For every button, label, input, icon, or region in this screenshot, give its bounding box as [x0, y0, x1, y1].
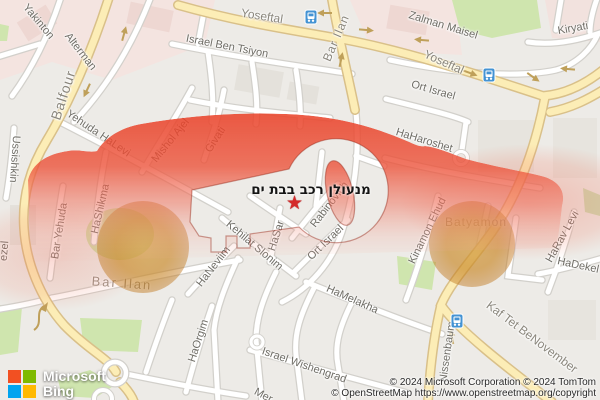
- street-label: Kiryati: [557, 21, 589, 37]
- map-canvas: [0, 0, 600, 400]
- street-label: Ussishkin: [7, 135, 21, 183]
- transit-station-icon[interactable]: [305, 10, 318, 25]
- microsoft-logo-icon: [8, 370, 36, 398]
- major-roads: [24, 0, 600, 400]
- locksmith-title: מנעולן רכב בבת ים: [250, 182, 372, 198]
- street-label: ezel: [0, 240, 11, 261]
- street-labels-layer: YakintonAltermanBalfourIsrael Ben Tsiyon…: [0, 0, 600, 400]
- street-label: HaNeviim: [195, 245, 233, 289]
- attribution-line1: © 2024 Microsoft Corporation © 2024 TomT…: [331, 377, 596, 388]
- street-label: Yakinton: [20, 2, 55, 41]
- street-label: Nissenbaum: [438, 321, 457, 383]
- buildings: [10, 2, 597, 340]
- street-label: Israel Wishengrad: [260, 346, 347, 385]
- location-star-icon: ★: [286, 194, 303, 213]
- car-wheel-right: [429, 201, 515, 287]
- logo-product: Bing: [43, 384, 106, 399]
- street-label: Bar Ilan: [321, 13, 351, 63]
- street-label: Ort Israel: [306, 223, 346, 262]
- map[interactable]: YakintonAltermanBalfourIsrael Ben Tsiyon…: [0, 0, 600, 400]
- attribution-line2[interactable]: © OpenStreetMap https://www.openstreetma…: [331, 388, 596, 399]
- transit-layer: [0, 0, 600, 400]
- street-label: Givati: [204, 125, 229, 155]
- major-roads-casing: [24, 0, 600, 400]
- street-label: Yoseftal: [240, 7, 284, 25]
- street-label: Batyamon: [445, 216, 507, 228]
- street-label: HaHaroshet: [394, 127, 453, 155]
- street-label: Israel Ben Tsiyon: [185, 34, 269, 61]
- street-label: Mishol Ajel: [150, 117, 192, 165]
- transit-station-icon[interactable]: [483, 68, 496, 83]
- street-label: Kinamon Ehud: [407, 196, 449, 266]
- street-label: HaRav Levi: [544, 209, 581, 264]
- street-label: Ort Israel: [410, 79, 457, 102]
- street-label: Mer: [252, 387, 274, 400]
- one-way-arrows: [34, 10, 575, 345]
- street-label: HaSar: [267, 219, 287, 252]
- street-label: Yehuda HaLevi: [64, 109, 132, 160]
- minor-roads-casing: [0, 0, 600, 400]
- overlay-wash-right: [400, 144, 600, 260]
- attribution: © 2024 Microsoft Corporation © 2024 TomT…: [331, 377, 596, 399]
- zone-tints: [0, 0, 600, 80]
- key-cutout-outline: [190, 139, 388, 252]
- car-key-overlay: [0, 0, 600, 400]
- car-silhouette: [28, 113, 563, 262]
- street-label: Zalman Maisel: [407, 10, 479, 41]
- street-label: Yoseftal: [422, 48, 465, 76]
- street-label: Bar Ilan: [91, 274, 153, 291]
- street-label: Kehilat Slonim: [224, 219, 285, 273]
- transit-station-icon[interactable]: [451, 314, 464, 329]
- street-label: HaOrgim: [187, 318, 211, 363]
- street-label: Balfour: [48, 68, 77, 121]
- street-label: HaDekel: [556, 256, 600, 276]
- street-label: HaMelakha: [324, 284, 379, 317]
- street-label: HaShikma: [90, 183, 112, 235]
- parks: [0, 0, 600, 398]
- bing-logo[interactable]: Microsoft Bing: [8, 369, 106, 400]
- street-label: Bar Yehuda: [50, 202, 70, 260]
- overlay-wash-left: [0, 201, 150, 311]
- street-label: Kaf Tet BeNovember: [484, 299, 579, 375]
- roundabouts: [94, 152, 468, 400]
- car-wheel-left: [97, 201, 189, 293]
- street-label: Rabinovich: [309, 180, 351, 230]
- street-label: Alterman: [62, 31, 98, 72]
- minor-roads: [0, 0, 600, 400]
